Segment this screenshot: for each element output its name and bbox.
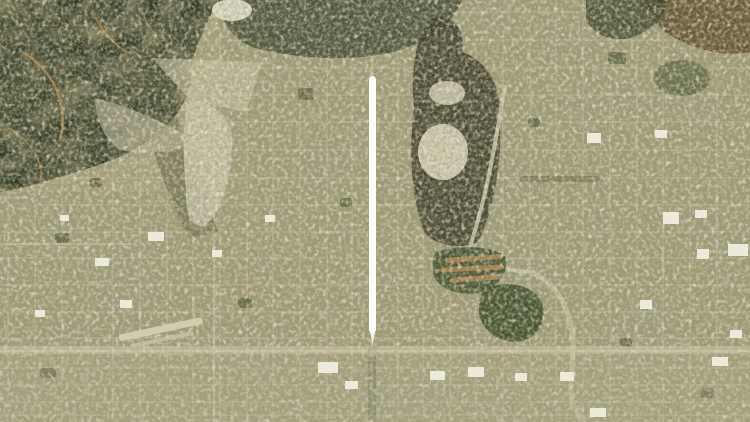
commercial-zone <box>0 354 750 422</box>
satellite-image[interactable] <box>0 0 750 422</box>
annotation-line-body <box>369 76 376 333</box>
vertical-line-annotation <box>369 76 376 345</box>
satellite-map-canvas <box>0 0 750 422</box>
commercial-corridor <box>0 346 750 354</box>
